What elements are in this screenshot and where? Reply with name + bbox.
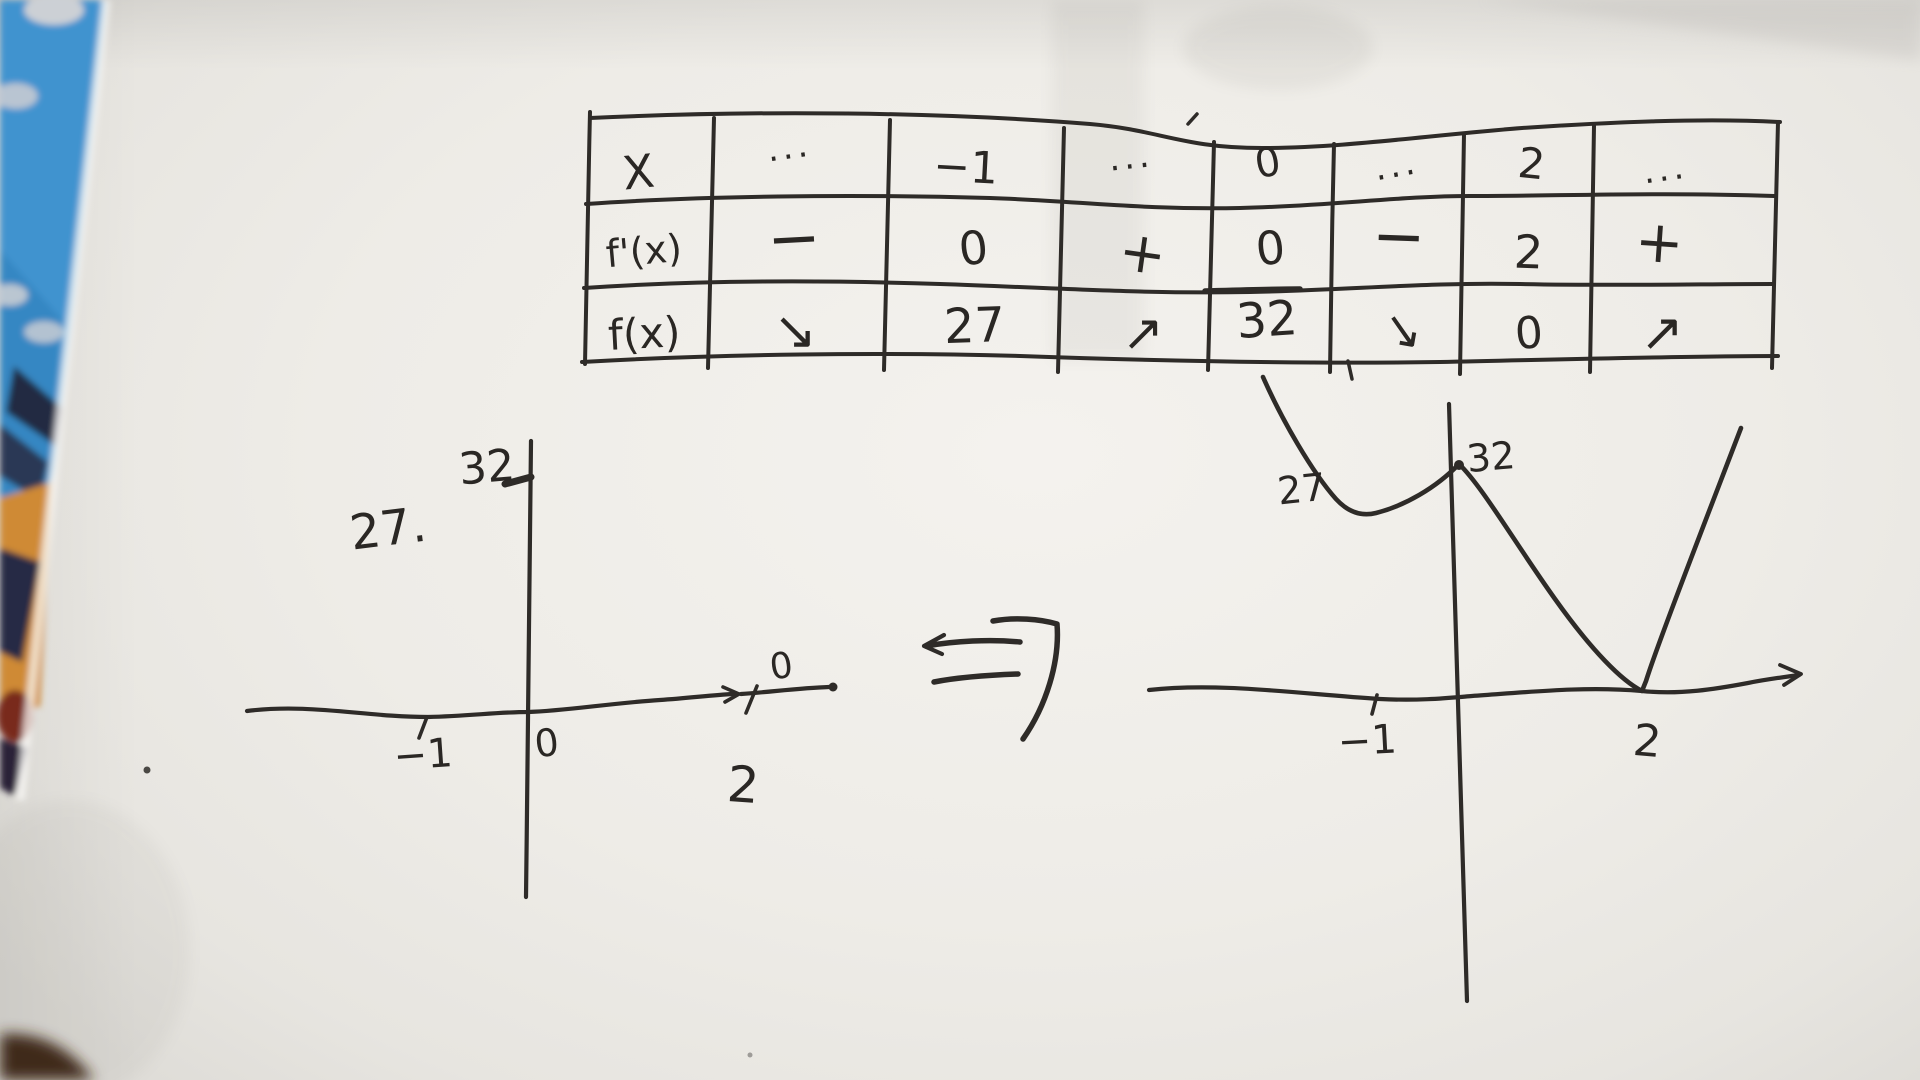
left-axes-sketch bbox=[247, 441, 838, 897]
left-label-32: 32 bbox=[457, 440, 517, 496]
cell-sign-value: 2 bbox=[1513, 225, 1544, 280]
paper-top-edge-shade bbox=[1480, 0, 1920, 60]
cell-f-value: 0 bbox=[1513, 307, 1544, 360]
right-label-neg1: −1 bbox=[1337, 717, 1398, 766]
left-label-27: 27. bbox=[347, 497, 430, 562]
sign-table bbox=[582, 112, 1780, 379]
right-label-2: 2 bbox=[1631, 715, 1663, 768]
cell-x-value: 2 bbox=[1516, 138, 1548, 190]
cell-x-value: −1 bbox=[932, 140, 999, 194]
right-curve-labels: 27 32 −1 2 bbox=[1275, 433, 1663, 768]
left-label-zero-above-axis: 0 bbox=[767, 645, 795, 689]
table-column-line bbox=[1772, 122, 1778, 368]
right-label-27: 27 bbox=[1275, 465, 1328, 514]
table-column-line bbox=[1330, 144, 1334, 372]
cell-increasing-arrow-icon: ↗ bbox=[1640, 303, 1684, 363]
cell-sign-minus: − bbox=[1371, 199, 1427, 275]
right-x-axis bbox=[1149, 675, 1799, 700]
implies-bottom-stroke bbox=[934, 674, 1018, 682]
table-column-line bbox=[585, 112, 590, 364]
left-axis-end-dot bbox=[829, 683, 838, 692]
cell-f-value: 32 bbox=[1234, 290, 1299, 350]
row-label-x: X bbox=[620, 144, 657, 201]
table-column-line bbox=[884, 120, 890, 370]
cell-sign-minus: − bbox=[765, 201, 822, 278]
left-y-axis bbox=[526, 441, 531, 897]
cell-sign-zero: 0 bbox=[956, 220, 991, 277]
row-label-f: f(x) bbox=[607, 307, 682, 360]
cell-ellipsis: ··· bbox=[1642, 156, 1692, 202]
table-bottom-border bbox=[582, 354, 1778, 363]
row-label-f-prime: f'(x) bbox=[604, 226, 684, 276]
implies-seven-stroke bbox=[993, 619, 1057, 739]
left-axes-labels: 32 27. −1 0 2 0 bbox=[347, 440, 796, 815]
fabric-cloud-spot bbox=[24, 321, 64, 343]
table-column-line bbox=[1208, 142, 1214, 370]
cell-decreasing-arrow-icon: ↘ bbox=[773, 301, 817, 361]
table-column-line bbox=[1460, 134, 1464, 374]
handwritten-math-notes-photo: X ··· −1 ··· 0 ··· 2 ··· f'(x) − 0 + 0 −… bbox=[0, 0, 1920, 1080]
table-row-border bbox=[586, 194, 1774, 208]
cell-sign-zero: 0 bbox=[1253, 220, 1288, 277]
right-label-32: 32 bbox=[1465, 433, 1517, 481]
left-tick-2 bbox=[746, 686, 757, 713]
left-label-2: 2 bbox=[725, 755, 761, 815]
table-column-line bbox=[708, 118, 714, 368]
cell-ellipsis: ··· bbox=[766, 134, 816, 180]
cell-ellipsis: ··· bbox=[1108, 145, 1156, 189]
cell-x-value: 0 bbox=[1251, 138, 1284, 188]
left-x-axis bbox=[247, 694, 733, 717]
fabric-background bbox=[0, 0, 106, 800]
cell-f-value: 27 bbox=[943, 297, 1006, 355]
stray-tick bbox=[1188, 114, 1197, 124]
cell-sign-plus: + bbox=[1633, 206, 1686, 277]
right-y-axis bbox=[1449, 404, 1467, 1001]
sign-table-text: X ··· −1 ··· 0 ··· 2 ··· f'(x) − 0 + 0 −… bbox=[604, 134, 1691, 363]
cell-sign-plus: + bbox=[1115, 218, 1171, 289]
stray-ink-dot bbox=[144, 767, 151, 774]
cell-decreasing-arrow-icon: ↘ bbox=[1378, 299, 1427, 361]
shadow-blob bbox=[1183, 6, 1373, 90]
implies-arrow bbox=[924, 619, 1057, 739]
left-label-origin: 0 bbox=[532, 720, 561, 766]
function-curve bbox=[1263, 377, 1741, 691]
curve-peak-knot bbox=[1454, 460, 1464, 470]
table-row-border bbox=[584, 281, 1772, 292]
implies-top-stroke bbox=[926, 641, 1020, 646]
table-column-line bbox=[1590, 126, 1594, 372]
stray-ink-dot bbox=[748, 1053, 753, 1058]
cell-increasing-arrow-icon: ↗ bbox=[1122, 304, 1164, 362]
shadow-blob bbox=[0, 800, 190, 1080]
cell-ellipsis: ··· bbox=[1373, 152, 1424, 199]
scene-canvas: X ··· −1 ··· 0 ··· 2 ··· f'(x) − 0 + 0 −… bbox=[0, 0, 1920, 1080]
left-label-neg1: −1 bbox=[392, 730, 454, 780]
